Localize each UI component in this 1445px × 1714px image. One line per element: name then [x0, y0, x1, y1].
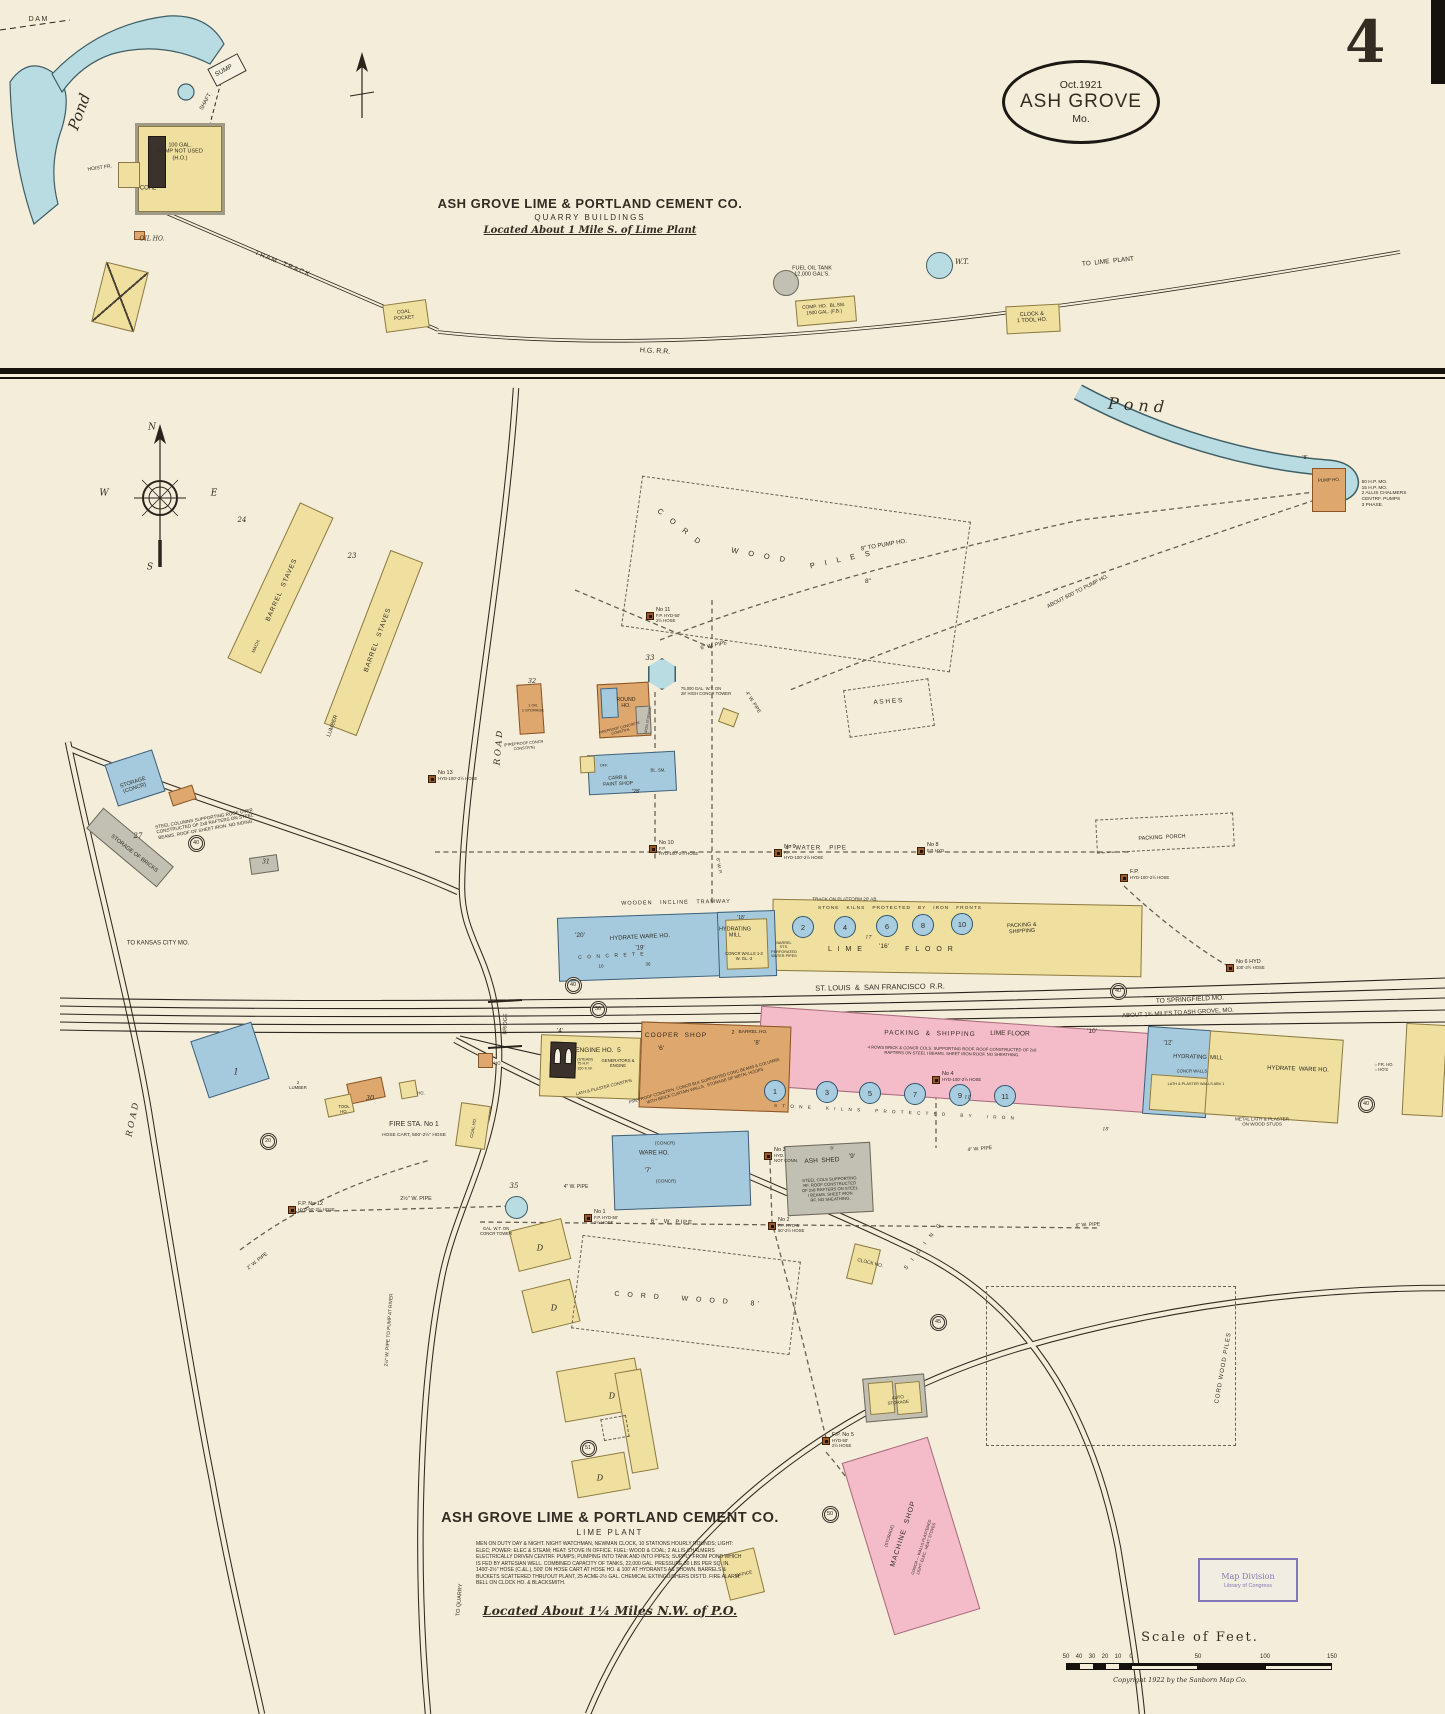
scale-tick: 10 [1115, 1654, 1122, 1660]
small-house-2 [478, 1053, 493, 1068]
pump-house-pond [1312, 468, 1346, 512]
map-label: 2½" W. PIPE [400, 1196, 432, 1202]
map-label: COAL [140, 185, 156, 192]
map-label: 1 [233, 1067, 238, 1076]
north-arrow-icon [350, 52, 374, 118]
plant-subtitle: LIME PLANT [440, 1528, 780, 1537]
scale-tick: 150 [1327, 1654, 1337, 1660]
page-number: 4 [1345, 8, 1385, 76]
map-label: STEEL COLS SUPPORTING RF. ROOF CONSTRUCT… [801, 1176, 859, 1204]
map-label: WARE HO. [639, 1150, 669, 1157]
map-label: '8' [1302, 455, 1307, 461]
plant-title: ASH GROVE LIME & PORTLAND CEMENT CO. [440, 1510, 780, 1526]
carr-office [580, 756, 596, 774]
scale-tick: 50 [1063, 1654, 1070, 1660]
hydrant-dot [771, 1225, 774, 1228]
map-label: 35 [510, 1182, 519, 1190]
section-divider [0, 368, 1445, 374]
warehouse-7 [612, 1131, 752, 1211]
hydrant-dot [935, 1079, 938, 1082]
map-label: FIRE STA. No 1 [389, 1121, 439, 1129]
hydrant-dot [777, 852, 780, 855]
ref-circle-50: 50 [824, 1508, 837, 1521]
scale-seg-4 [1265, 1663, 1332, 1670]
kiln-7: 7 [904, 1083, 926, 1105]
small-house-1 [399, 1080, 419, 1100]
hydrant-note: HYD-100'-2½ HOSE [1130, 876, 1169, 881]
map-label: 1 OIL 1 STORAGE [522, 703, 544, 712]
scale-tick: 0 [1129, 1654, 1132, 1660]
scale-bar: 5040302010050100150 [1066, 1663, 1334, 1670]
kiln-10: 10 [951, 913, 973, 935]
engine-arch-2 [565, 1048, 573, 1064]
quarry-location-note: Located About 1 Mile S. of Lime Plant [400, 225, 780, 236]
stamp-state: Mo. [1072, 113, 1090, 125]
water-tank-quarry [926, 252, 953, 279]
library-stamp-line1: Map Division [1221, 1572, 1274, 1581]
hydrant-dot [649, 615, 652, 618]
compass-rose [134, 424, 186, 567]
map-label: 30 [366, 1095, 374, 1103]
map-label: 100 GAL. PUMP NOT USED (H.O.) [157, 142, 203, 161]
map-label: '6' [658, 1045, 664, 1053]
kiln-3: 3 [816, 1081, 838, 1103]
ref-circle-40: 40 [190, 837, 203, 850]
map-label: LIME FLOOR [990, 1030, 1030, 1038]
kiln-1: 1 [764, 1080, 786, 1102]
ref-circle-40: 40 [1112, 985, 1125, 998]
hydrant-dot [291, 1209, 294, 1212]
hydrant-note: F.P. HYD-50' 2½ HOSE [656, 614, 680, 624]
map-label: AUTO STORAGE [887, 1394, 909, 1407]
map-label: 27 [134, 832, 143, 840]
map-label: HYDRATING MILL [719, 927, 751, 940]
map-label: 24 [238, 516, 247, 524]
hydrant-dot [587, 1217, 590, 1220]
kiln-2: 2 [792, 916, 814, 938]
hydrant-note: HYD-50'-2½ HOSE [298, 1208, 335, 1213]
map-label: COAL POCKET [393, 309, 415, 323]
quarry-caption: ASH GROVE LIME & PORTLAND CEMENT CO. QUA… [400, 196, 780, 236]
map-label: CONCR WALLS 1-2 W. GL.-3 [725, 952, 763, 962]
map-label: W [99, 489, 108, 500]
kiln-4: 4 [834, 916, 856, 938]
map-label: GENERATORS & ENGINE [602, 1059, 635, 1069]
map-label: '20' [575, 932, 585, 940]
map-label: 31 [262, 858, 270, 865]
kiln-11: 11 [994, 1085, 1016, 1107]
stamp-date: Oct.1921 [1060, 79, 1103, 91]
map-label: TO KANSAS CITY MO. [127, 940, 189, 947]
map-label: TRACK ON PLATFORM 20' AB. [812, 896, 877, 901]
map-label: (STEAM) 75 H.P. 150 K.W. [577, 1057, 593, 1070]
hydrant-note: F.P. HYD-100'-2½ HOSE [659, 847, 698, 857]
hydrant-dot [825, 1440, 828, 1443]
cord-wood-piles-br [986, 1286, 1236, 1446]
map-label: 11' [965, 1095, 972, 1100]
map-label: (CONCR) [656, 1178, 676, 1183]
map-label: METAL LATH & PLASTER ON WOOD STUDS [1235, 1117, 1289, 1128]
packing-porch [1095, 812, 1235, 853]
map-label: 10 [598, 963, 603, 968]
hydrant-dot [652, 848, 655, 851]
map-label: E [211, 489, 218, 500]
map-label: (CONCR) [655, 1140, 675, 1145]
map-label: '16' [879, 943, 889, 951]
hydrant-note: F.P. HYD & 50'-2½ HOSE [778, 1224, 804, 1234]
map-label: CARR & PAINT SHOP [603, 775, 633, 788]
copyright-line: Copyright 1922 by the Sanborn Map Co. [1040, 1676, 1320, 1684]
scale-seg-3 [1198, 1663, 1265, 1670]
hydrant-note: F.P. HYD. [927, 849, 945, 854]
scale-title: Scale of Feet. [1066, 1630, 1334, 1645]
map-label: HO. [494, 1062, 501, 1067]
map-label: H.G. R.R. [640, 347, 671, 357]
map-label: S [147, 563, 153, 574]
map-label: P o n d [1107, 395, 1164, 418]
map-label: CLOCK & 1 TOOL HO. [1016, 311, 1047, 326]
map-label: 32 [528, 678, 536, 686]
map-label: COOPER SHOP [645, 1032, 707, 1040]
map-label: 17' [866, 935, 873, 940]
quarry-hoist-annex [118, 162, 140, 188]
ref-circle-45: 45 [932, 1316, 945, 1329]
map-label: BL. SM. [651, 769, 666, 774]
map-label: TOOL HO. [338, 1105, 349, 1115]
map-label: HO. [417, 1092, 424, 1097]
map-label: BARREL HO. [739, 1030, 768, 1036]
ref-circle-40: 40 [567, 979, 580, 992]
hydrate-warehouse-east [1204, 1030, 1344, 1123]
hydrant-note: HYD-100'-2½ HOSE [438, 777, 477, 782]
hydrant-dot [767, 1155, 770, 1158]
hydrant-dot [431, 778, 434, 781]
map-label: '10' [1087, 1028, 1097, 1036]
map-label: 4" W. PIPE [564, 1185, 589, 1191]
map-label: D [609, 1391, 615, 1400]
scale-of-feet: Scale of Feet. 5040302010050100150 [1066, 1630, 1334, 1670]
ref-circle-51: 51 [582, 1442, 595, 1455]
map-label: D [537, 1243, 543, 1252]
library-stamp-line2: Library of Congress [1224, 1583, 1272, 1589]
quarry-subtitle: QUARRY BUILDINGS [400, 213, 780, 222]
stamp-city: ASH GROVE [1020, 91, 1142, 113]
map-label: BARREL STS. PERFORATED WATER PIPES [771, 941, 797, 959]
quarry-title: ASH GROVE LIME & PORTLAND CEMENT CO. [400, 196, 780, 211]
hydrant-dot [920, 850, 923, 853]
map-label: 8' [830, 1145, 833, 1150]
map-label: 50 H.P. MO. 15 H.P. MO. 2 ALLIS CHALMERS… [1362, 480, 1407, 508]
map-label: ROUND HO. [616, 697, 635, 709]
map-label: D [597, 1473, 603, 1482]
water-tank-35 [505, 1196, 528, 1219]
map-label: D [551, 1303, 557, 1312]
section-divider-thin [0, 377, 1445, 379]
title-stamp: Oct.1921 ASH GROVE Mo. [1002, 60, 1160, 144]
map-label: L I M E [828, 946, 864, 954]
map-label: OIL HO. [140, 235, 165, 242]
hydrant-note: HYD-50' 2½ HOSE [832, 1439, 851, 1449]
hydrant-note: HYD. NOT CONN. [774, 1154, 798, 1164]
map-label: '8' [754, 1040, 760, 1047]
map-label: '4' [557, 1028, 563, 1035]
map-label: 33 [646, 654, 655, 662]
sheet-corner-mark [1431, 0, 1445, 84]
map-linework [0, 0, 1445, 1714]
map-label: '12' [1164, 1040, 1173, 1047]
dashed-outbuilding [600, 1415, 629, 1441]
map-label: ○ FR. HO. ○ HO'S [1374, 1063, 1393, 1073]
map-label: PACKING & SHIPPING [884, 1029, 976, 1038]
map-label: PACKING & SHIPPING [1007, 922, 1037, 936]
map-label: 23 [348, 552, 357, 560]
scale-seg-2 [1131, 1663, 1198, 1670]
map-label: 6" W. PIPE [651, 1219, 693, 1228]
sanborn-map-sheet: D A MPondSUMPSHAFT100 GAL. PUMP NOT USED… [0, 0, 1445, 1714]
scale-tick: 100 [1260, 1654, 1270, 1660]
kiln-6: 6 [876, 915, 898, 937]
map-label: 75,000 GAL. W.T. ON 28' HIGH CONCR TOWER [681, 687, 731, 697]
map-label: W.T. [955, 258, 969, 266]
map-label: 2 [732, 1031, 735, 1037]
hydrant-note: 100'-2½ HOSE [1236, 966, 1265, 971]
map-label: 18' [1103, 1127, 1110, 1132]
scale-tick: 50 [1195, 1654, 1202, 1660]
kiln-5: 5 [859, 1082, 881, 1104]
map-label: '9' [849, 1153, 855, 1161]
map-label: '7' [645, 1167, 651, 1175]
hydrant-note: F.P. HYD-50' 2½ HOSE [594, 1216, 618, 1226]
map-label: 2 LUMBER [289, 1081, 306, 1091]
kiln-8: 8 [912, 914, 934, 936]
map-label: BRIDGE [502, 1013, 509, 1034]
library-stamp: Map Division Library of Congress [1198, 1558, 1298, 1602]
map-label: OFF. [600, 764, 608, 769]
map-label: D A M [29, 16, 48, 24]
ref-circle-20: 20 [262, 1135, 275, 1148]
scale-tick: 30 [1089, 1654, 1096, 1660]
hydrant-dot [1123, 877, 1126, 880]
map-label: N [148, 423, 156, 434]
scale-tick: 40 [1076, 1654, 1083, 1660]
map-label: FUEL OIL TANK 12,000 GAL'S. [792, 266, 832, 279]
scale-seg-1 [1066, 1663, 1131, 1670]
map-label: HOSE CART, 500'-2½" HOSE [382, 1133, 446, 1139]
map-label: F L O O R [905, 946, 955, 954]
map-label: 36 [645, 961, 650, 966]
map-label: '28' [632, 789, 640, 795]
engine-arch-1 [554, 1048, 562, 1064]
ref-circle-36: 36 [592, 1003, 605, 1016]
plant-description: MEN ON DUTY DAY & NIGHT. NIGHT WATCHMAN,… [476, 1541, 744, 1587]
map-label: LATH & PLASTER WALLS ABV 1 [1168, 1082, 1225, 1086]
map-label: STONE KILNS PROTECTED BY IRON FRONTS [818, 906, 982, 912]
warehouse-edge [1402, 1023, 1445, 1117]
plant-location-note: Located About 1¼ Miles N.W. of P.O. [440, 1603, 780, 1618]
hydrant-note: F.P. HYD-100'-2½ HOSE [784, 851, 823, 861]
mill-annex [1149, 1074, 1211, 1114]
hydrant-dot [1229, 967, 1232, 970]
plant-caption: ASH GROVE LIME & PORTLAND CEMENT CO. LIM… [440, 1510, 780, 1618]
map-label: '18' [737, 916, 744, 922]
map-label: GAL. W.T. ON CONCR TOWER [480, 1227, 512, 1237]
hydrant-note: HYD-100'-2½ HOSE [942, 1078, 981, 1083]
scale-tick: 20 [1102, 1654, 1109, 1660]
ref-circle-40: 40 [1360, 1098, 1373, 1111]
shaft-line [209, 82, 221, 128]
map-label: CONCR WALLS [1177, 1070, 1208, 1075]
map-label: 8" [865, 578, 871, 586]
map-label: ENGINE HO. 5 [575, 1047, 621, 1055]
